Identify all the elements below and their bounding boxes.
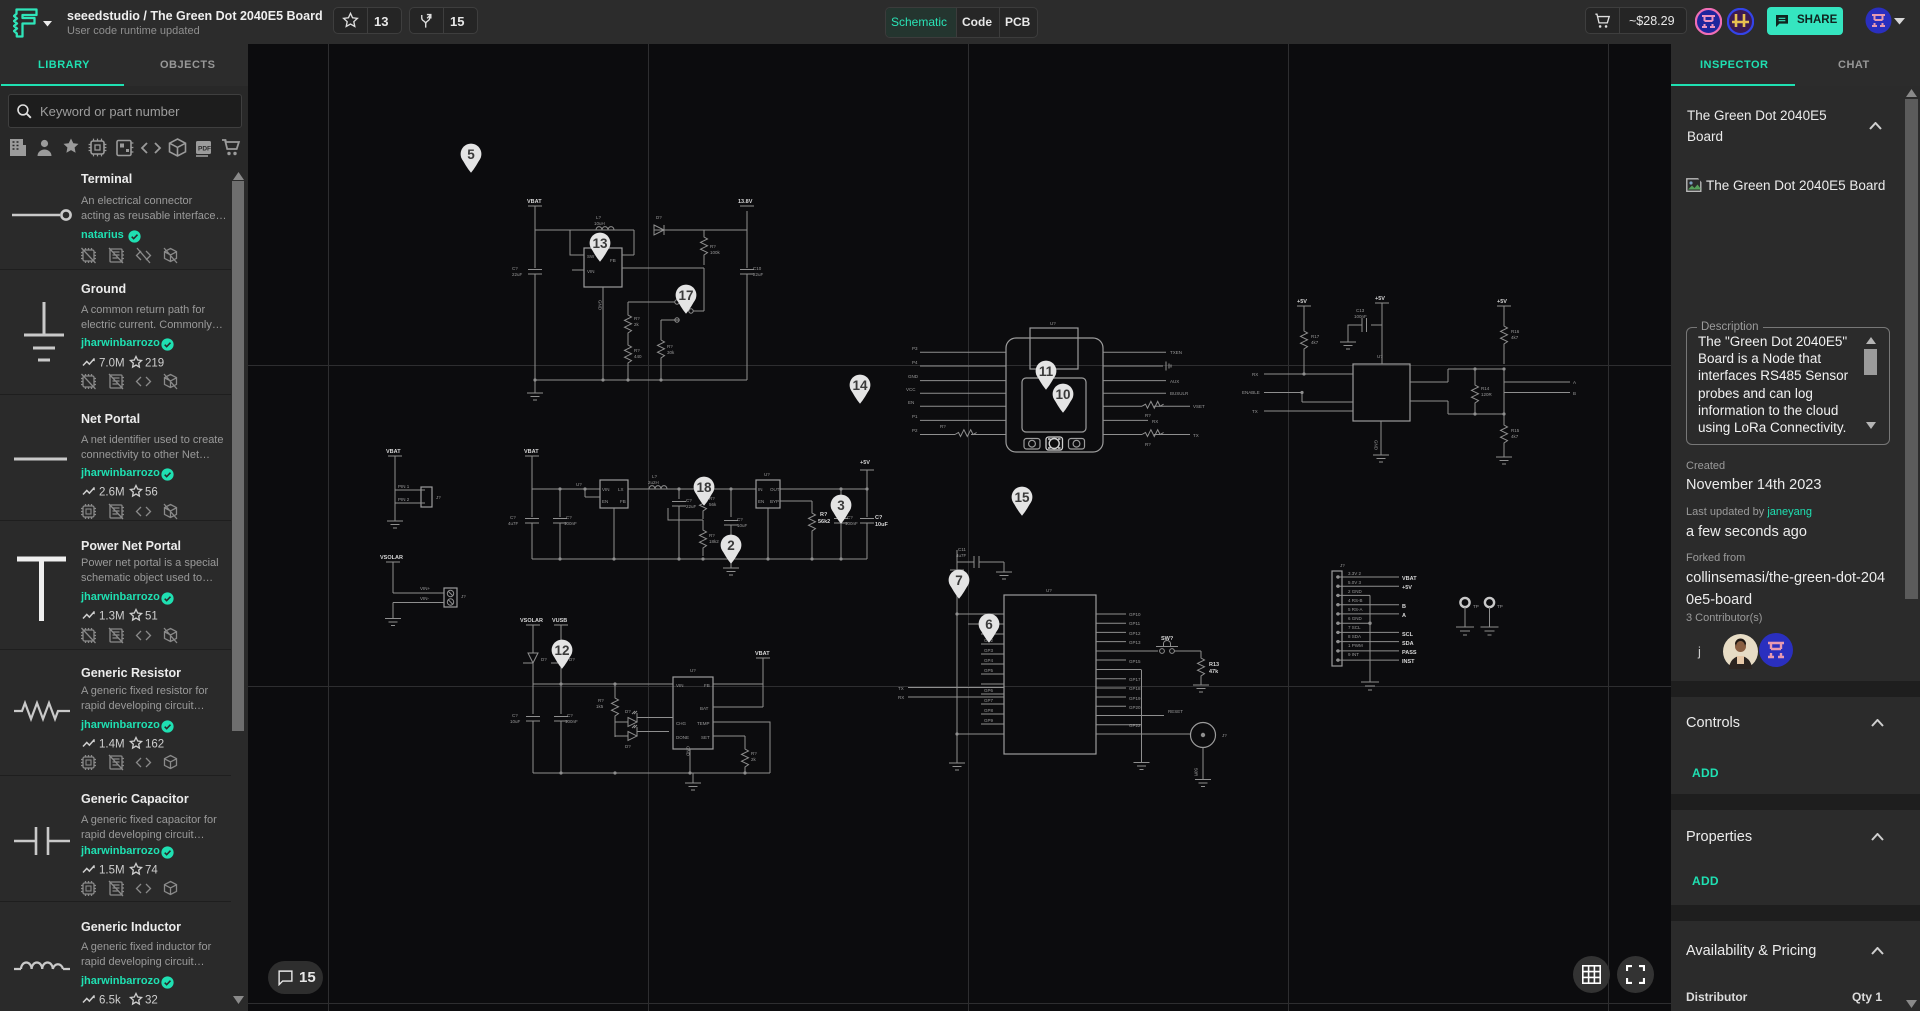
svg-text:120R: 120R xyxy=(1481,392,1493,397)
svg-text:74: 74 xyxy=(145,865,158,877)
svg-text:2 GND: 2 GND xyxy=(1348,589,1363,594)
svg-text:C?: C? xyxy=(737,517,743,522)
svg-text:R?: R? xyxy=(820,512,828,518)
svg-text:GND: GND xyxy=(908,374,919,379)
svg-text:2k: 2k xyxy=(634,322,640,327)
svg-text:6 GND: 6 GND xyxy=(1348,616,1363,621)
svg-text:U?: U? xyxy=(690,668,696,673)
svg-text:INST: INST xyxy=(1402,659,1415,665)
svg-text:VIN+: VIN+ xyxy=(420,586,431,591)
svg-text:219: 219 xyxy=(145,358,164,370)
svg-text:VCC: VCC xyxy=(906,387,916,392)
svg-text:VBAT: VBAT xyxy=(1402,576,1417,582)
svg-text:SCL: SCL xyxy=(1402,632,1414,638)
svg-text:3: 3 xyxy=(837,498,845,513)
svg-text:10uF: 10uF xyxy=(875,522,888,528)
svg-text:GP3: GP3 xyxy=(984,648,994,653)
svg-text:440: 440 xyxy=(634,354,642,359)
svg-text:GP20: GP20 xyxy=(1129,705,1141,710)
svg-text:4u7F: 4u7F xyxy=(508,521,519,526)
svg-text:R?: R? xyxy=(598,698,604,703)
svg-text:5.0V 3: 5.0V 3 xyxy=(1348,580,1362,585)
svg-text:D?: D? xyxy=(625,709,631,714)
svg-text:VIN: VIN xyxy=(587,269,595,274)
svg-text:56: 56 xyxy=(145,487,158,499)
svg-text:VSET: VSET xyxy=(1193,404,1205,409)
svg-text:GND: GND xyxy=(598,300,603,311)
svg-text:7.0M: 7.0M xyxy=(99,358,125,370)
svg-text:+5V: +5V xyxy=(1297,299,1307,305)
svg-text:GP4: GP4 xyxy=(984,658,994,663)
svg-text:GP12: GP12 xyxy=(1129,631,1141,636)
svg-text:C?: C? xyxy=(567,713,573,718)
svg-text:VIN-: VIN- xyxy=(420,596,430,601)
svg-text:SW?: SW? xyxy=(1161,636,1174,642)
svg-text:U?: U? xyxy=(764,472,770,477)
svg-text:+5V: +5V xyxy=(1497,299,1507,305)
svg-text:SDA: SDA xyxy=(1402,641,1414,647)
svg-text:R?: R? xyxy=(667,344,673,349)
svg-text:1.5M: 1.5M xyxy=(99,865,125,877)
svg-text:22uF: 22uF xyxy=(753,272,764,277)
svg-text:B: B xyxy=(1402,604,1406,610)
svg-text:J?: J? xyxy=(436,495,441,500)
svg-text:6.5k: 6.5k xyxy=(99,995,121,1007)
svg-text:CHG: CHG xyxy=(676,721,686,726)
svg-text:C11: C11 xyxy=(958,547,966,552)
svg-text:B: B xyxy=(1573,391,1576,396)
svg-text:VBAT: VBAT xyxy=(386,449,401,455)
svg-text:VBAT: VBAT xyxy=(527,199,542,205)
svg-text:5: 5 xyxy=(467,147,475,162)
svg-text:18: 18 xyxy=(696,480,712,495)
svg-text:22uF: 22uF xyxy=(512,272,523,277)
svg-text:32: 32 xyxy=(145,995,158,1007)
svg-text:BYP: BYP xyxy=(770,499,779,504)
svg-text:DONE: DONE xyxy=(676,735,689,740)
svg-text:PIN 2: PIN 2 xyxy=(398,497,410,502)
svg-text:10uH: 10uH xyxy=(594,221,605,226)
svg-text:10: 10 xyxy=(1055,387,1070,402)
svg-text:11: 11 xyxy=(1039,364,1054,379)
svg-text:R13: R13 xyxy=(1209,662,1219,668)
svg-text:4k7: 4k7 xyxy=(1511,335,1519,340)
svg-text:GND: GND xyxy=(1374,440,1379,451)
svg-text:FB: FB xyxy=(620,499,626,504)
svg-text:GP7: GP7 xyxy=(984,698,994,703)
svg-text:7: 7 xyxy=(955,573,963,588)
svg-text:+5V: +5V xyxy=(1402,585,1412,591)
svg-text:BUSULR: BUSULR xyxy=(1170,391,1189,396)
svg-text:U?: U? xyxy=(1046,588,1052,593)
svg-text:GP11: GP11 xyxy=(1129,621,1141,626)
svg-text:2k: 2k xyxy=(751,757,757,762)
svg-text:4 RS-B: 4 RS-B xyxy=(1348,598,1363,603)
svg-text:OUT: OUT xyxy=(770,487,780,492)
svg-text:J?: J? xyxy=(1222,733,1227,738)
svg-text:C?: C? xyxy=(847,515,853,520)
svg-text:R?: R? xyxy=(940,424,946,429)
svg-text:14: 14 xyxy=(852,378,868,393)
svg-text:GP18: GP18 xyxy=(1129,686,1141,691)
svg-text:EN: EN xyxy=(908,400,914,405)
svg-text:EN: EN xyxy=(602,499,608,504)
svg-text:C?: C? xyxy=(686,498,692,503)
svg-text:SW: SW xyxy=(587,254,595,259)
svg-text:PDF: PDF xyxy=(198,146,211,153)
svg-text:4u7F: 4u7F xyxy=(956,553,967,558)
svg-text:GP10: GP10 xyxy=(1129,612,1141,617)
svg-text:J?: J? xyxy=(1340,563,1345,568)
svg-text:D?: D? xyxy=(541,657,547,662)
svg-text:100k: 100k xyxy=(710,250,721,255)
svg-text:50R: 50R xyxy=(1194,768,1199,777)
svg-text:R?: R? xyxy=(751,751,757,756)
svg-text:100nF: 100nF xyxy=(1354,314,1367,319)
svg-text:TEMP: TEMP xyxy=(697,721,710,726)
svg-text:3.3V 2: 3.3V 2 xyxy=(1348,571,1362,576)
svg-text:R?: R? xyxy=(709,533,715,538)
svg-text:VBAT: VBAT xyxy=(524,449,539,455)
svg-text:+5V: +5V xyxy=(860,460,870,466)
svg-text:EN: EN xyxy=(758,499,764,504)
svg-text:VSOLAR: VSOLAR xyxy=(380,555,403,561)
svg-text:15: 15 xyxy=(1014,490,1030,505)
svg-text:P1: P1 xyxy=(912,414,918,419)
svg-text:C?: C? xyxy=(566,515,572,520)
svg-text:4k7: 4k7 xyxy=(1311,340,1319,345)
svg-text:U?: U? xyxy=(1050,321,1056,326)
svg-text:C10: C10 xyxy=(753,266,762,271)
svg-text:BAT: BAT xyxy=(700,706,709,711)
svg-text:R14: R14 xyxy=(1481,386,1490,391)
svg-text:TP: TP xyxy=(1497,604,1503,609)
svg-text:TXEN: TXEN xyxy=(1170,350,1182,355)
svg-text:22uF: 22uF xyxy=(686,504,697,509)
svg-text:100nF: 100nF xyxy=(565,719,578,724)
svg-text:6: 6 xyxy=(985,617,993,632)
svg-text:56k: 56k xyxy=(709,502,717,507)
svg-text:5 RS-A: 5 RS-A xyxy=(1348,607,1363,612)
svg-text:P2: P2 xyxy=(912,428,918,433)
svg-text:1.4M: 1.4M xyxy=(99,739,125,751)
svg-text:VBAT: VBAT xyxy=(755,651,770,657)
svg-text:GP15: GP15 xyxy=(1129,659,1141,664)
svg-text:162: 162 xyxy=(145,739,164,751)
svg-text:17: 17 xyxy=(678,288,693,303)
svg-text:GP13: GP13 xyxy=(1129,640,1141,645)
svg-text:ENABLE: ENABLE xyxy=(1242,390,1260,395)
svg-text:P3: P3 xyxy=(912,346,918,351)
svg-text:L?: L? xyxy=(596,215,602,220)
svg-text:FB: FB xyxy=(610,258,616,263)
svg-text:9 INT: 9 INT xyxy=(1348,652,1359,657)
svg-text:VUSB: VUSB xyxy=(552,618,567,624)
svg-text:2u2H: 2u2H xyxy=(648,480,659,485)
svg-text:+5V: +5V xyxy=(1375,296,1385,302)
svg-text:10uF: 10uF xyxy=(510,719,521,724)
svg-text:GP5: GP5 xyxy=(984,668,994,673)
svg-text:GP17: GP17 xyxy=(1129,677,1141,682)
svg-text:R?: R? xyxy=(1145,413,1151,418)
svg-text:100nF: 100nF xyxy=(845,521,858,526)
svg-text:51: 51 xyxy=(145,611,158,623)
svg-text:56k2: 56k2 xyxy=(818,519,830,525)
svg-text:AUX: AUX xyxy=(1170,379,1179,384)
svg-text:VIN: VIN xyxy=(602,487,610,492)
svg-text:13.8V: 13.8V xyxy=(738,199,753,205)
svg-text:R?: R? xyxy=(634,348,640,353)
svg-text:FB: FB xyxy=(704,683,710,688)
svg-text:100nF: 100nF xyxy=(564,521,577,526)
svg-text:D?: D? xyxy=(569,657,575,662)
svg-text:C?: C? xyxy=(875,515,883,521)
svg-text:GP9: GP9 xyxy=(984,718,994,723)
svg-text:GP19: GP19 xyxy=(1129,696,1141,701)
svg-text:TX: TX xyxy=(1193,433,1199,438)
svg-text:SET: SET xyxy=(701,735,710,740)
svg-text:A: A xyxy=(1573,380,1576,385)
svg-text:U?: U? xyxy=(576,482,582,487)
svg-text:P4: P4 xyxy=(912,360,918,365)
svg-text:C?: C? xyxy=(512,713,518,718)
svg-text:R17: R17 xyxy=(1311,334,1320,339)
svg-text:R16: R16 xyxy=(1511,329,1520,334)
svg-text:IN: IN xyxy=(758,487,763,492)
svg-text:RX: RX xyxy=(898,695,904,700)
svg-text:R15: R15 xyxy=(1511,428,1520,433)
svg-text:47k: 47k xyxy=(1209,669,1219,675)
svg-text:GP8: GP8 xyxy=(984,708,994,713)
svg-text:C?: C? xyxy=(512,266,518,271)
svg-text:30k: 30k xyxy=(667,350,675,355)
svg-text:VIN: VIN xyxy=(676,683,684,688)
svg-text:PIN 1: PIN 1 xyxy=(398,484,410,489)
svg-text:TP: TP xyxy=(1473,604,1479,609)
svg-text:VSOLAR: VSOLAR xyxy=(520,618,543,624)
svg-text:7 SCL: 7 SCL xyxy=(1348,625,1361,630)
svg-text:D?: D? xyxy=(656,215,662,220)
svg-text:RX: RX xyxy=(1152,419,1158,424)
svg-text:RESET: RESET xyxy=(1168,709,1183,714)
svg-text:C?: C? xyxy=(510,515,516,520)
svg-text:TX: TX xyxy=(898,686,904,691)
svg-text:1.3M: 1.3M xyxy=(99,611,125,623)
svg-text:4k7: 4k7 xyxy=(1511,434,1519,439)
svg-text:RX: RX xyxy=(1252,372,1258,377)
svg-text:1 PWM: 1 PWM xyxy=(1348,643,1363,648)
svg-text:D?: D? xyxy=(625,744,631,749)
svg-text:LX: LX xyxy=(618,487,624,492)
svg-text:12: 12 xyxy=(554,643,569,658)
svg-text:R?: R? xyxy=(634,316,640,321)
svg-text:A: A xyxy=(1402,613,1406,619)
svg-text:R?: R? xyxy=(1145,442,1151,447)
svg-text:10uF: 10uF xyxy=(737,523,748,528)
svg-text:R?: R? xyxy=(710,244,716,249)
svg-text:18k2: 18k2 xyxy=(709,539,719,544)
svg-text:2: 2 xyxy=(727,538,735,553)
svg-text:2.6M: 2.6M xyxy=(99,487,125,499)
svg-text:8 SDA: 8 SDA xyxy=(1348,634,1361,639)
svg-text:L?: L? xyxy=(652,474,658,479)
svg-text:1k5: 1k5 xyxy=(596,704,604,709)
svg-text:13: 13 xyxy=(592,236,608,251)
svg-text:C13: C13 xyxy=(1356,308,1365,313)
svg-text:GP6: GP6 xyxy=(984,688,994,693)
svg-text:TX: TX xyxy=(1252,409,1258,414)
svg-text:PASS: PASS xyxy=(1402,650,1417,656)
svg-text:J?: J? xyxy=(461,594,466,599)
svg-text:GP22: GP22 xyxy=(1129,723,1141,728)
